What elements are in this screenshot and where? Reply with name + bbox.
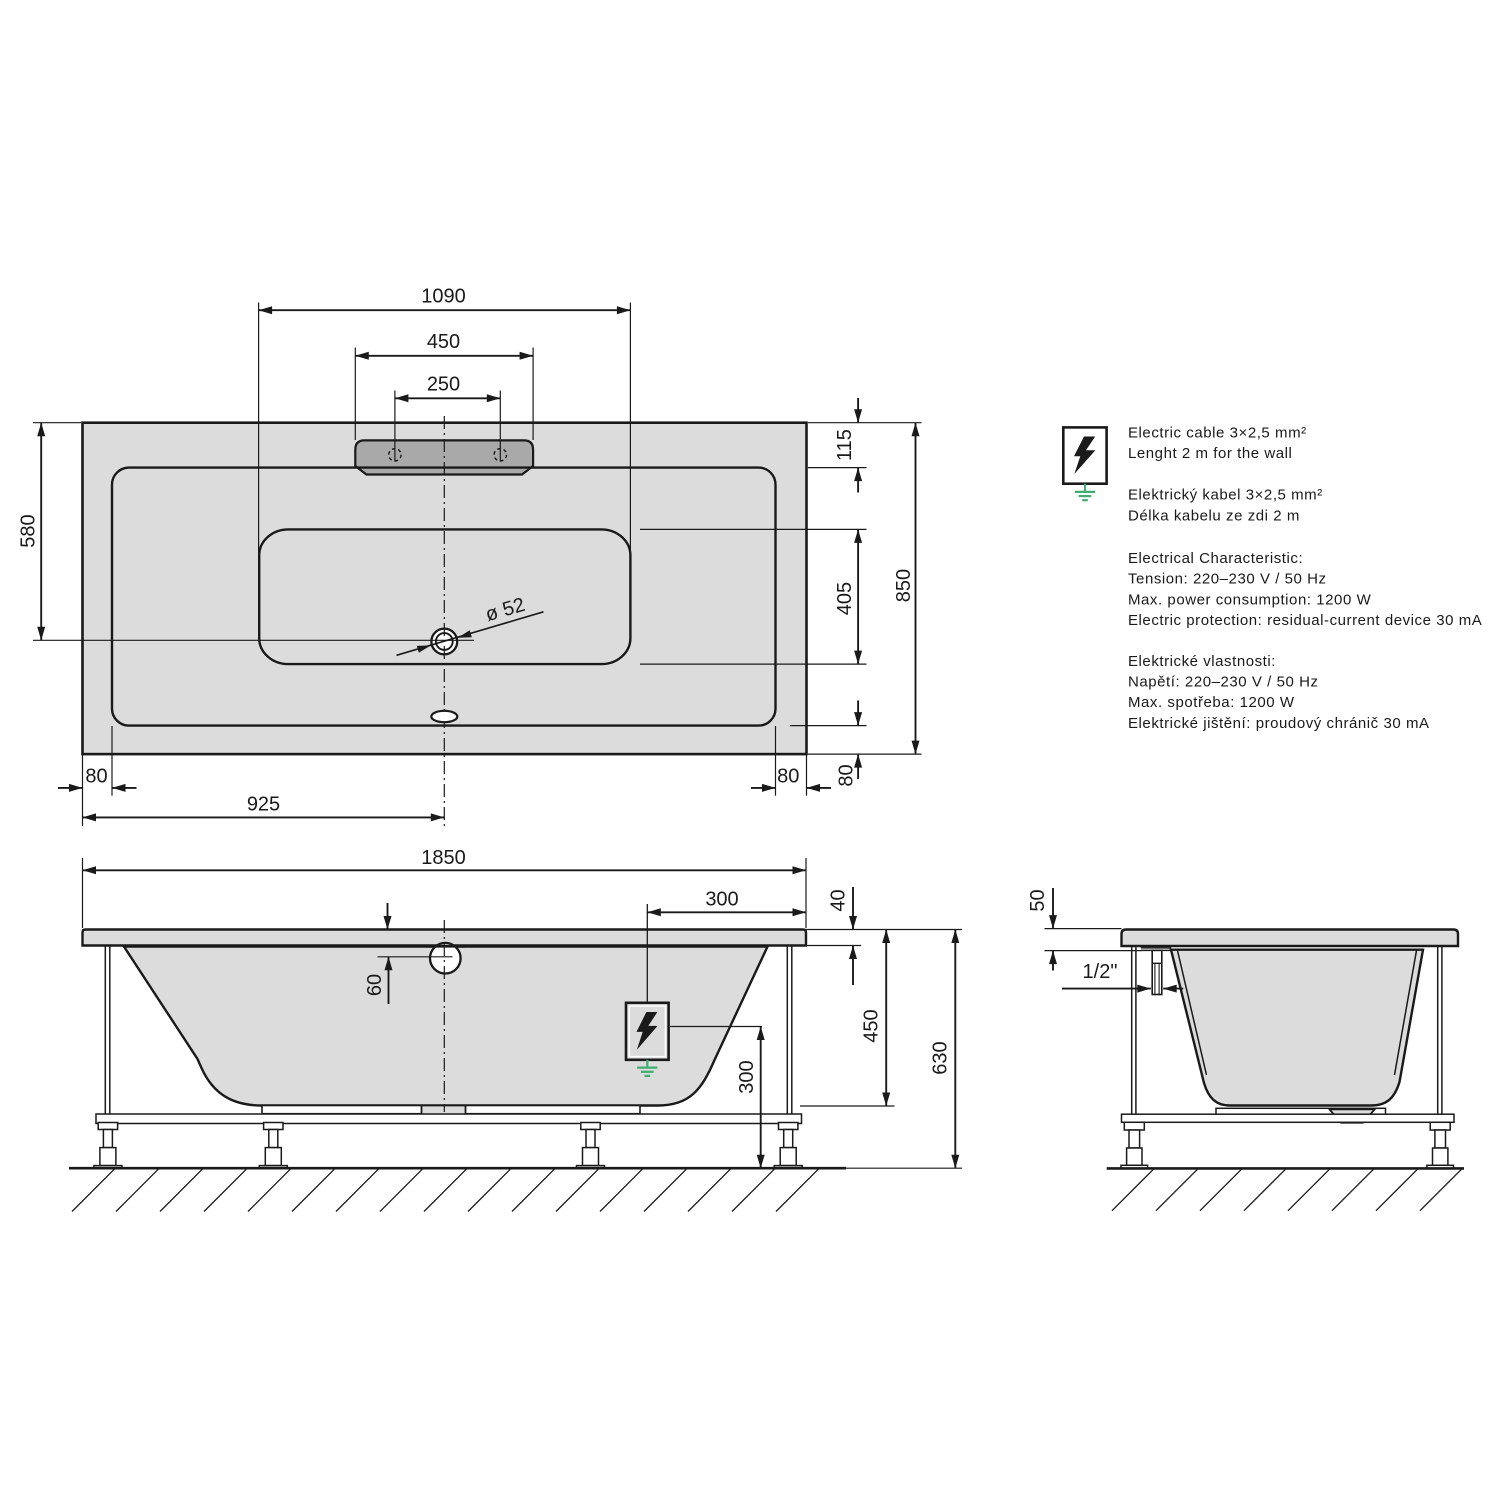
svg-text:580: 580 bbox=[18, 514, 40, 547]
svg-text:300: 300 bbox=[705, 889, 738, 911]
svg-text:250: 250 bbox=[427, 374, 460, 396]
svg-text:Electric protection: residual-: Electric protection: residual-current de… bbox=[1128, 612, 1482, 629]
svg-text:1850: 1850 bbox=[421, 847, 466, 869]
svg-text:Lenght 2 m for the wall: Lenght 2 m for the wall bbox=[1128, 445, 1292, 462]
svg-text:40: 40 bbox=[828, 889, 850, 911]
svg-text:Electrical Characteristic:: Electrical Characteristic: bbox=[1128, 550, 1303, 567]
svg-text:80: 80 bbox=[836, 764, 858, 786]
svg-text:925: 925 bbox=[247, 794, 280, 816]
svg-text:Délka kabelu ze zdi 2 m: Délka kabelu ze zdi 2 m bbox=[1128, 507, 1300, 524]
svg-text:450: 450 bbox=[861, 1009, 883, 1042]
svg-text:Max. spotřeba: 1200 W: Max. spotřeba: 1200 W bbox=[1128, 694, 1295, 711]
svg-text:1/2": 1/2" bbox=[1083, 961, 1118, 983]
svg-text:Elektrické jištění: proudový c: Elektrické jištění: proudový chránič 30 … bbox=[1128, 715, 1430, 732]
svg-text:80: 80 bbox=[777, 766, 799, 788]
svg-text:Electric cable 3×2,5 mm²: Electric cable 3×2,5 mm² bbox=[1128, 425, 1307, 442]
svg-text:300: 300 bbox=[736, 1060, 758, 1093]
svg-text:405: 405 bbox=[834, 582, 856, 615]
svg-text:50: 50 bbox=[1027, 889, 1049, 911]
svg-text:Napětí: 220–230 V / 50 Hz: Napětí: 220–230 V / 50 Hz bbox=[1128, 674, 1319, 691]
svg-text:630: 630 bbox=[930, 1041, 952, 1074]
svg-text:Tension: 220–230 V / 50 Hz: Tension: 220–230 V / 50 Hz bbox=[1128, 571, 1327, 588]
svg-text:450: 450 bbox=[427, 331, 460, 353]
svg-text:Elektrický kabel 3×2,5 mm²: Elektrický kabel 3×2,5 mm² bbox=[1128, 487, 1323, 504]
svg-text:60: 60 bbox=[364, 974, 386, 996]
svg-text:80: 80 bbox=[85, 766, 107, 788]
svg-text:Elektrické vlastnosti:: Elektrické vlastnosti: bbox=[1128, 653, 1276, 670]
svg-text:115: 115 bbox=[834, 429, 856, 461]
svg-text:1090: 1090 bbox=[421, 286, 466, 308]
svg-text:850: 850 bbox=[893, 569, 915, 602]
svg-text:Max. power consumption: 1200 W: Max. power consumption: 1200 W bbox=[1128, 591, 1372, 608]
